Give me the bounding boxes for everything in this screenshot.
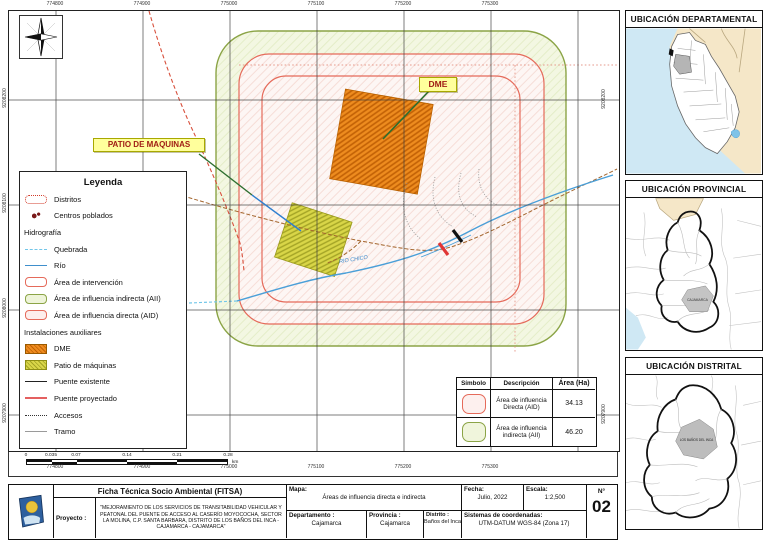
patio-swatch [25,360,47,370]
dme-swatch [25,344,47,354]
intervencion-swatch [25,277,47,287]
side-map-title: UBICACIÓN DISTRITAL [625,357,763,375]
provincial-map: CAJAMARCA [625,198,763,351]
sheet-number-cell: N° 02 [587,485,616,538]
mapa-cell: Mapa: Áreas de influencia directa e indi… [287,485,462,511]
fecha-cell: Fecha: Julio, 2022 [462,485,524,511]
aii-swatch [25,294,47,304]
table-header-row: Símbolo Descripción Área (Ha) [457,378,596,390]
legend-item: Puente existente [20,374,186,391]
easting-label: 775300 [468,464,512,470]
proyecto-text: "MEJORAMIENTO DE LOS SERVICIOS DE TRANSI… [96,498,287,538]
north-arrow [19,15,63,59]
dme-polygon [330,89,433,194]
easting-label: 774800 [33,1,77,7]
legend-item: Puente proyectado [20,390,186,407]
side-map-title: UBICACIÓN PROVINCIAL [625,180,763,198]
legend-item: Accesos [20,407,186,424]
legend-item: Patio de máquinas [20,357,186,374]
table-row: Área de influencia Directa (AID) 34.13 [457,390,596,418]
legend: Leyenda Distritos Centros poblados Hidro… [19,171,187,449]
ubicacion-departamental: UBICACIÓN DEPARTAMENTAL [625,10,763,175]
svg-text:LOS BAÑOS DEL INCA: LOS BAÑOS DEL INCA [680,437,714,442]
area-table: Símbolo Descripción Área (Ha) Área de in… [456,377,597,447]
ubicacion-distrital: UBICACIÓN DISTRITAL LOS BAÑOS DEL INCA [625,357,763,530]
escala-cell: Escala: 1:2,500 [524,485,587,511]
legend-item: Área de influencia directa (AID) [20,307,186,324]
dme-label: DME [419,77,457,92]
title-block: Ficha Técnica Socio Ambiental (FITSA) Pr… [8,484,618,540]
distritos-swatch [25,195,47,204]
legend-item: Área de influencia indirecta (AII) [20,291,186,308]
aid-swatch [25,310,47,320]
accesos-swatch [25,415,47,416]
tramo-swatch [25,431,47,432]
table-row: Área de influencia indirecta (AII) 46.20 [457,418,596,446]
centros-poblados-icon [25,211,47,220]
puente-existente-swatch [25,381,47,382]
institution-logo [9,485,54,538]
easting-label: 775100 [294,464,338,470]
easting-label: 775300 [468,1,512,7]
quebrada-swatch [25,249,47,250]
map-sheet: 774800 774900 775000 775100 775200 77530… [0,0,768,543]
patio-label: PATIO DE MAQUINAS [93,138,205,152]
departamento-cell: Departamento : Cajamarca [287,511,367,538]
legend-item: DME [20,340,186,357]
easting-label: 775200 [381,1,425,7]
easting-label: 774900 [120,1,164,7]
svg-text:CAJAMARCA: CAJAMARCA [687,298,708,302]
rio-swatch [25,265,47,266]
coordinate-system-cell: Sistemas de coordenadas: UTM-DATUM WGS-8… [462,511,587,538]
proyecto-label: Proyecto : [54,498,96,538]
easting-label: 775000 [207,464,251,470]
legend-item: Quebrada [20,241,186,258]
easting-label: 774900 [120,464,164,470]
main-map: DME PATIO DE MAQUINAS RIO CHICO 9208200 … [8,10,620,452]
legend-title: Leyenda [20,172,186,191]
easting-label: 775200 [381,464,425,470]
easting-label: 774800 [33,464,77,470]
easting-label: 775100 [294,1,338,7]
legend-section: Hidrografía [20,224,186,241]
legend-item: Tramo [20,423,186,440]
legend-item: Distritos [20,191,186,208]
distrital-map: LOS BAÑOS DEL INCA [625,375,763,530]
easting-label: 775000 [207,1,251,7]
northing-label: 9207900 [601,395,607,433]
side-map-title: UBICACIÓN DEPARTAMENTAL [625,10,763,28]
legend-section: Instalaciones auxiliares [20,324,186,341]
provincia-cell: Provincia : Cajamarca [367,511,424,538]
northing-label: 9208200 [601,80,607,118]
aii-symbol [462,422,486,442]
legend-item: Centros poblados [20,208,186,225]
departamental-map [625,28,763,175]
ubicacion-provincial: UBICACIÓN PROVINCIAL CAJAMARCA [625,180,763,351]
aid-symbol [462,394,486,414]
puente-proyectado-swatch [25,397,47,399]
document-title: Ficha Técnica Socio Ambiental (FITSA) [54,485,287,498]
legend-item: Río [20,257,186,274]
distrito-cell: Distrito : Baños del Inca [424,511,462,538]
legend-item: Área de intervención [20,274,186,291]
